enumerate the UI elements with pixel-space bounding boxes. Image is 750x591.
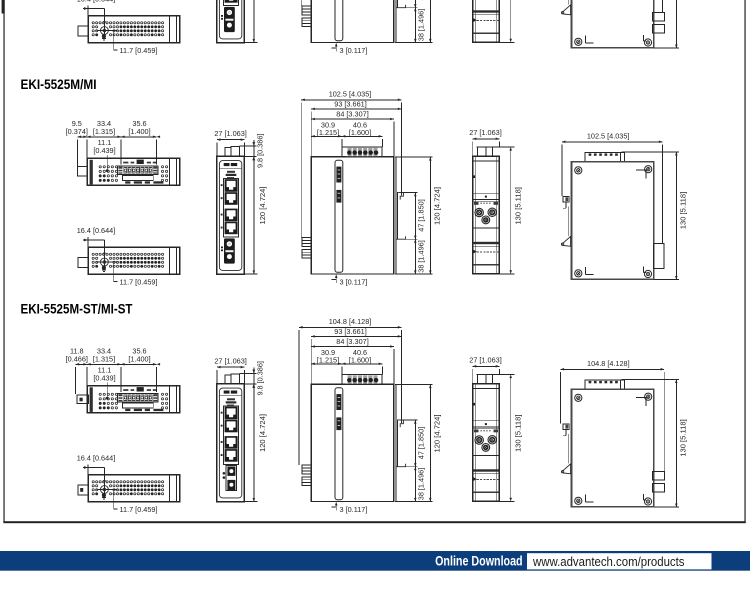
svg-text:38 [1.496]: 38 [1.496] [417,240,426,272]
svg-text:130 [5.118]: 130 [5.118] [679,192,688,229]
svg-text:120 [4.724]: 120 [4.724] [432,187,441,225]
svg-text:130 [5.118]: 130 [5.118] [679,419,688,456]
svg-text:16.4 [0.644]: 16.4 [0.644] [77,226,116,235]
svg-text:16.4 [0.644]: 16.4 [0.644] [77,0,116,3]
svg-text:9.8 [0.386]: 9.8 [0.386] [256,361,265,396]
svg-text:120 [4.724]: 120 [4.724] [258,186,267,224]
svg-text:3 [0.117]: 3 [0.117] [340,505,368,514]
svg-text:[1.600]: [1.600] [349,356,371,365]
svg-text:38 [1.496]: 38 [1.496] [417,9,426,41]
svg-text:38 [1.496]: 38 [1.496] [417,468,426,500]
svg-text:[1.215]: [1.215] [317,128,339,137]
svg-text:27 [1.063]: 27 [1.063] [214,129,246,138]
svg-text:Online Download: Online Download [435,554,523,569]
svg-text:EKI-5525M/MI: EKI-5525M/MI [21,77,97,92]
svg-text:102.5 [4.035]: 102.5 [4.035] [329,90,372,99]
svg-text:[0.439]: [0.439] [93,373,115,382]
svg-text:84 [3.307]: 84 [3.307] [336,109,368,118]
svg-text:120 [4.724]: 120 [4.724] [258,414,267,452]
svg-text:[1.600]: [1.600] [349,128,371,137]
svg-text:3 [0.117]: 3 [0.117] [340,277,368,286]
svg-text:[1.400]: [1.400] [128,354,150,363]
svg-text:93 [3.661]: 93 [3.661] [334,327,366,336]
svg-text:27 [1.063]: 27 [1.063] [469,128,501,137]
svg-text:11.7 [0.459]: 11.7 [0.459] [120,505,158,514]
svg-text:27 [1.063]: 27 [1.063] [214,356,246,365]
svg-text:[0.466]: [0.466] [66,354,88,363]
svg-text:[1.315]: [1.315] [93,354,115,363]
svg-text:27 [1.063]: 27 [1.063] [469,356,501,365]
svg-text:130 [5.118]: 130 [5.118] [514,415,523,452]
svg-text:[0.439]: [0.439] [93,146,115,155]
svg-text:84 [3.307]: 84 [3.307] [336,337,368,346]
svg-text:120 [4.724]: 120 [4.724] [432,414,441,452]
svg-text:[1.400]: [1.400] [128,127,150,136]
svg-text:11.7 [0.459]: 11.7 [0.459] [120,46,158,55]
svg-text:47 [1.850]: 47 [1.850] [417,199,426,231]
svg-text:11.7 [0.459]: 11.7 [0.459] [120,278,158,287]
svg-text:102.5 [4.035]: 102.5 [4.035] [587,132,630,141]
svg-text:9.8 [0.386]: 9.8 [0.386] [256,134,265,169]
svg-text:104.8 [4.128]: 104.8 [4.128] [587,359,630,368]
svg-text:[0.374]: [0.374] [66,127,88,136]
svg-text:130 [5.118]: 130 [5.118] [514,187,523,224]
svg-text:3 [0.117]: 3 [0.117] [340,46,368,55]
svg-text:16.4 [0.644]: 16.4 [0.644] [77,453,116,462]
svg-text:EKI-5525M-ST/MI-ST: EKI-5525M-ST/MI-ST [21,301,133,316]
svg-text:www.advantech.com/products: www.advantech.com/products [532,554,685,569]
svg-text:[1.315]: [1.315] [93,127,115,136]
svg-text:93 [3.661]: 93 [3.661] [334,99,366,108]
svg-text:47 [1.850]: 47 [1.850] [417,427,426,459]
svg-text:[1.215]: [1.215] [317,356,339,365]
svg-text:104.8 [4.128]: 104.8 [4.128] [329,317,372,326]
